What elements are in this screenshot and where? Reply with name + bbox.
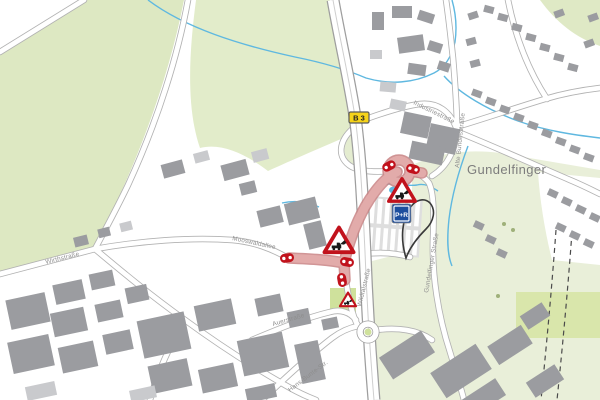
field-west xyxy=(0,0,184,272)
map-canvas[interactable]: Wirthstraße Mooswaldallee Industriestraß… xyxy=(0,0,600,400)
svg-text:B 3: B 3 xyxy=(353,114,365,123)
town-label-gundelfinger: Gundelfinger xyxy=(467,162,547,177)
park-and-ride-sign: P+R xyxy=(392,204,411,223)
street-label-mooswaldallee: Mooswaldallee xyxy=(232,235,277,251)
svg-text:P+R: P+R xyxy=(395,212,408,219)
tree xyxy=(496,294,500,298)
tree xyxy=(502,222,506,226)
map-viewport[interactable]: Wirthstraße Mooswaldallee Industriestraß… xyxy=(0,0,600,400)
route-badge-b3: B 3 xyxy=(349,112,369,123)
tree xyxy=(511,228,515,232)
roundabout-south xyxy=(360,324,376,340)
field-north xyxy=(190,0,355,171)
